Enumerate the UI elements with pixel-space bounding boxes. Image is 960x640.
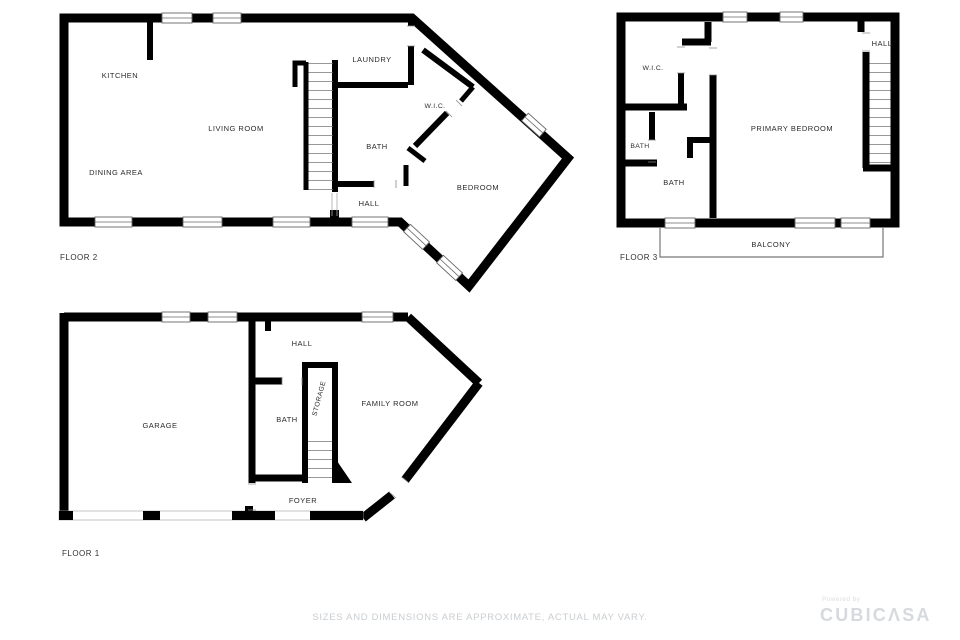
floor-3-plan: W.I.C. HALL BATH BATH PRIMARY BEDROOM BA… [620,12,895,262]
floor-1-label: FLOOR 1 [62,549,100,558]
room-label-wic: W.I.C. [643,65,664,72]
room-label-foyer: FOYER [289,496,317,505]
room-label-laundry: LAUNDRY [352,55,391,64]
room-label-primary-bedroom: PRIMARY BEDROOM [751,124,833,133]
room-label-balcony: BALCONY [751,240,790,249]
room-label-bedroom: BEDROOM [457,183,499,192]
room-label-bath: BATH [366,142,387,151]
floor-2-stairs [309,62,333,190]
room-label-hall: HALL [292,339,313,348]
disclaimer-text: SIZES AND DIMENSIONS ARE APPROXIMATE, AC… [312,612,647,623]
footer: SIZES AND DIMENSIONS ARE APPROXIMATE, AC… [312,596,931,625]
room-label-kitchen: KITCHEN [102,71,138,80]
room-label-bath-small: BATH [630,143,649,150]
floorplan-page: KITCHEN LIVING ROOM DINING AREA LAUNDRY … [0,0,960,640]
brand-caret: Λ [888,605,902,625]
room-label-bath: BATH [276,415,297,424]
room-label-family-room: FAMILY ROOM [362,399,419,408]
floor-2-plan: KITCHEN LIVING ROOM DINING AREA LAUNDRY … [60,13,568,286]
room-label-hall: HALL [872,39,893,48]
powered-by-text: Powered by [822,596,861,603]
floor-1-plan: GARAGE HALL BATH STORAGE FAMILY ROOM FOY… [59,312,479,558]
room-label-hall: HALL [359,199,380,208]
floor-3-exterior-walls [621,17,895,223]
floor-2-label: FLOOR 2 [60,253,98,262]
cubicasa-logo: Powered by CUBICΛSA [820,596,932,625]
brand-wordmark: CUBICΛSA [820,605,932,625]
room-label-wic: W.I.C. [425,103,446,110]
floor-1-stairs [308,433,332,483]
floor-3-label: FLOOR 3 [620,253,658,262]
floorplan-canvas: KITCHEN LIVING ROOM DINING AREA LAUNDRY … [0,0,960,640]
brand-suffix: SA [902,605,931,625]
room-label-garage: GARAGE [142,421,177,430]
floor-3-stairs [870,57,891,165]
brand-prefix: CUBIC [820,605,888,625]
room-label-bath: BATH [663,178,684,187]
room-label-living-room: LIVING ROOM [208,124,264,133]
room-label-dining-area: DINING AREA [89,168,143,177]
